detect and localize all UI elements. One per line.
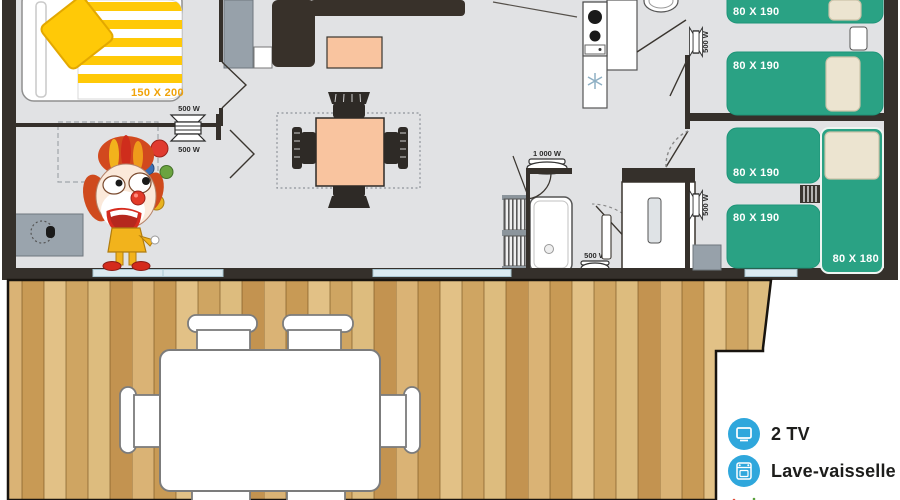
kitchen-counter: [607, 0, 637, 70]
juggling-ball-green: [160, 166, 173, 179]
floor-plan: 150 X 200: [0, 0, 900, 500]
legend-item-kids-club: Club enfant: [728, 491, 896, 500]
wardrobe-mirror: [648, 198, 661, 243]
side-table: [254, 47, 272, 68]
heater-500w-corridor-label: 500 W: [701, 30, 710, 53]
heater-500w-bunkroom-label: 500 W: [701, 193, 710, 216]
heater-500w-bottom-label: 500 W: [178, 145, 201, 154]
shelf-cap-mid: [502, 230, 529, 236]
corner-bed-label: 80 X 180: [833, 253, 879, 265]
wardrobe-top: [622, 168, 695, 182]
single-bed-3-label: 80 X 190: [733, 167, 779, 179]
heater-500w-top-label: 500 W: [178, 104, 201, 113]
coffee-table: [327, 37, 382, 68]
wall-right: [884, 0, 898, 280]
oven-drawer: [585, 45, 605, 54]
wall-jamb: [216, 114, 221, 140]
dining-table: [316, 118, 384, 186]
pillow-2: [826, 57, 860, 111]
stove-burner-large: [588, 10, 602, 24]
clown-glove: [151, 236, 159, 244]
window-3: [745, 270, 797, 277]
deck-chair-top1-seat: [197, 330, 250, 351]
clown-nose: [131, 191, 145, 205]
wall-bathroom-left: [526, 168, 530, 272]
deck-chair-left-seat: [134, 395, 162, 447]
heater-1000w-label: 1 000 W: [533, 149, 562, 158]
legend-label-tv: 2 TV: [771, 424, 810, 445]
desk-chair-seat: [46, 226, 55, 238]
wall-bedroom1-right-a: [219, 0, 223, 62]
dishwasher-icon: [728, 455, 760, 487]
sofa-chaise: [272, 0, 315, 67]
deck-chair-top2-seat: [288, 330, 341, 351]
corner-bed-pillow: [825, 132, 879, 179]
oven-knob: [599, 48, 602, 51]
legend-item-tv: 2 TV: [728, 417, 896, 451]
nightstand-bedroom3: [693, 245, 721, 270]
single-bed-2-label: 80 X 190: [733, 60, 779, 72]
window-2: [373, 270, 511, 277]
terrace: [8, 280, 771, 500]
shelf-unit-top: [504, 199, 527, 230]
dining-chair-top-seat: [333, 103, 365, 118]
stove-burner-small: [590, 31, 601, 42]
clown-icon: [728, 492, 760, 500]
sofa-back: [310, 0, 465, 16]
legend-label-dishwasher: Lave-vaisselle: [771, 461, 896, 482]
dining-chair-left-seat: [301, 132, 316, 164]
dining-chair-right-seat: [384, 132, 399, 164]
dining-chair-bottom-back: [328, 196, 370, 208]
pillow-1: [829, 0, 861, 20]
nightstand-bedroom2: [850, 27, 867, 50]
bedroom-2: 80 X 190 80 X 190: [727, 0, 883, 115]
master-bedroom: 150 X 200: [22, 0, 184, 101]
wall-bathroom-top: [526, 168, 572, 174]
legend-item-dishwasher: Lave-vaisselle: [728, 454, 896, 488]
clown-shoe-left: [103, 262, 121, 271]
shower: [530, 197, 572, 272]
master-bed-size-label: 150 X 200: [131, 87, 184, 99]
shelf-unit-bottom: [504, 236, 527, 266]
clown-shoe-right: [132, 262, 150, 271]
heater-icon: [171, 115, 205, 141]
single-bed-1-label: 80 X 190: [733, 6, 779, 18]
shower-drain: [545, 245, 554, 254]
clown-body: [108, 228, 146, 252]
deck-chair-right-seat: [378, 395, 406, 447]
bunk-ladder: [800, 185, 820, 203]
dining-chair-top-back: [328, 92, 370, 104]
sideboard: [224, 0, 253, 68]
wall-left: [2, 0, 16, 280]
tv-icon: [728, 418, 760, 450]
door-leaf: [602, 215, 611, 259]
terrace-table: [160, 350, 380, 491]
single-bed-4-label: 80 X 190: [733, 212, 779, 224]
wall-bedroom3-a: [685, 121, 690, 129]
legend: 2 TV Lave-vaisselle: [728, 417, 896, 500]
